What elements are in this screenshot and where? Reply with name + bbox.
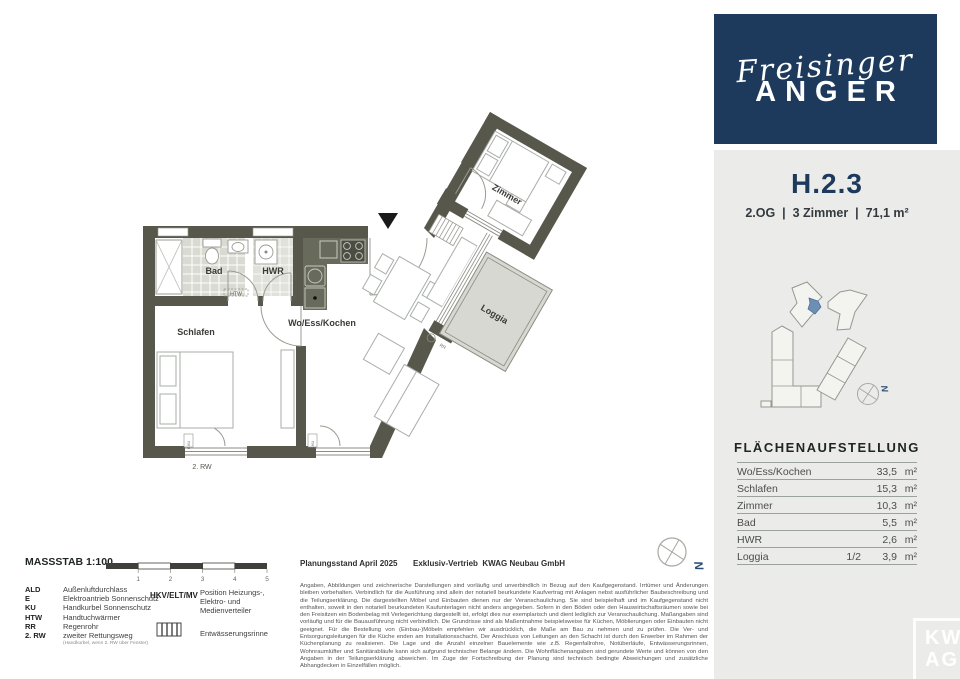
wall-niche [158,228,188,236]
legend-note: (Handkurbel, wenn 2. RW über Fenster) [63,640,290,647]
sink [228,240,248,253]
svg-text:E KU: E KU [311,440,315,448]
eku-mark: E KU [184,434,193,449]
svg-text:E KU: E KU [187,440,191,448]
entrance-arrow-icon [378,213,398,229]
site-building-d [817,338,866,400]
site-building-b [828,290,867,330]
area-table: Wo/Ess/Kochen 33,5 m² Schlafen 15,3 m² Z… [737,462,917,565]
scale-tick: 3 [201,576,205,583]
scale-bar: 1 2 3 4 5 [100,560,275,586]
table-row: HWR 2,6 m² [737,530,917,547]
north-label: N [691,560,706,571]
sales-contact: Exklusiv-Vertrieb KWAG Neubau GmbH [413,559,565,568]
site-map: N [740,252,940,422]
wall-niche [253,228,293,236]
window-living [316,446,370,458]
bed-double [157,352,233,428]
rotated-wing: RR Zimmer Loggia [376,112,614,382]
shower [156,240,182,294]
kwag-watermark: KW AG [913,618,960,679]
site-building-c [772,326,821,407]
unit-id: H.2.3 [714,168,940,200]
washing-machine [255,240,277,264]
legal-disclaimer: Angaben, Abbildungen und zeichnerische D… [300,583,708,671]
hkv-legend-term: HKV/ELT/MV [150,591,198,600]
room-label-bad: Bad [205,266,222,276]
site-compass: N [858,384,891,405]
htw-mark: HTW [230,292,242,298]
table-row: Wo/Ess/Kochen 33,5 m² [737,462,917,479]
scale-tick: 5 [265,576,269,583]
brochure-page: RR Zimmer Loggia HTW HKV/ELT/MV E KU E K… [0,0,960,679]
area-table-title: FLÄCHENAUFSTELLUNG [714,440,940,455]
brand-logo: Freisinger ANGER [714,14,937,144]
table-row: Loggia 1/2 3,9 m² [737,547,917,564]
kitchen-counter [303,238,368,310]
rr-mark: RR [439,342,448,350]
scale-tick: 1 [136,576,140,583]
hkv-legend-def: Position Heizungs-, Elektro- und Medienv… [200,588,280,615]
room-label-schlafen: Schlafen [177,327,215,337]
room-label-wek: Wo/Ess/Kochen [288,318,356,328]
scale-tick: 2 [169,576,173,583]
planning-status: Planungsstand April 2025 [300,559,398,568]
room-label-hwr: HWR [262,266,284,276]
north-label: N [879,385,890,394]
scale-tick: 4 [233,576,237,583]
eku-mark: E KU [308,434,317,449]
table-row: Zimmer 10,3 m² [737,496,917,513]
wardrobe [281,350,294,428]
table-row: Bad 5,5 m² [737,513,917,530]
window-schlafen [185,446,247,458]
hkv-mark: HKV/ELT/MV [293,273,298,299]
compass: N [658,538,706,571]
dining-table [360,248,445,327]
rw2-mark: 2. RW [192,464,212,471]
drainage-channel-icon [156,622,182,638]
stove-icon [341,240,365,262]
unit-meta: 2.OG | 3 Zimmer | 71,1 m² [714,206,940,220]
table-row: Schlafen 15,3 m² [737,479,917,496]
drainage-channel-label: Entwässerungsrinne [200,629,268,638]
